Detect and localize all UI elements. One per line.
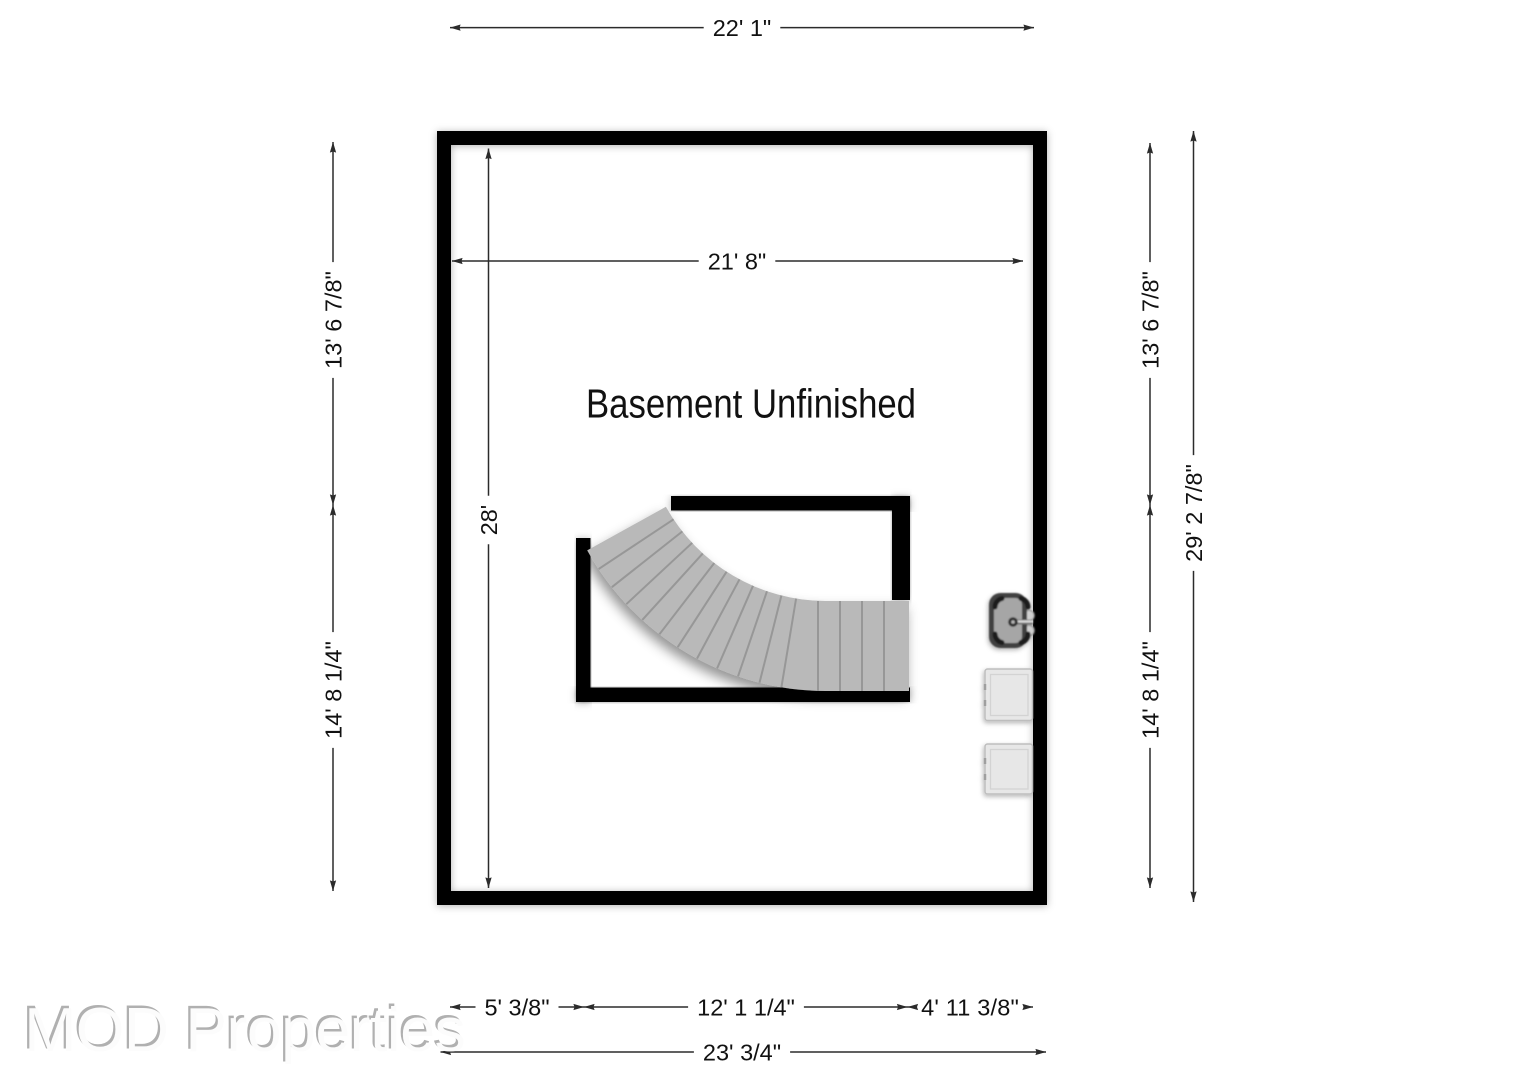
- svg-text:5' 3/8": 5' 3/8": [484, 994, 549, 1020]
- svg-text:12' 1 1/4": 12' 1 1/4": [697, 994, 795, 1020]
- svg-text:13' 6 7/8": 13' 6 7/8": [320, 271, 346, 369]
- svg-text:29' 2 7/8": 29' 2 7/8": [1181, 464, 1207, 562]
- svg-text:4' 11 3/8": 4' 11 3/8": [921, 994, 1019, 1020]
- svg-text:22' 1": 22' 1": [713, 15, 772, 41]
- svg-text:MOD Properties: MOD Properties: [24, 995, 465, 1065]
- svg-text:23' 3/4": 23' 3/4": [703, 1039, 781, 1065]
- svg-text:21' 8": 21' 8": [708, 248, 767, 274]
- svg-text:28': 28': [476, 505, 502, 536]
- svg-text:14' 8 1/4": 14' 8 1/4": [1137, 641, 1163, 739]
- svg-text:Basement Unfinished: Basement Unfinished: [586, 381, 916, 427]
- svg-text:13' 6 7/8": 13' 6 7/8": [1137, 271, 1163, 369]
- svg-text:14' 8 1/4": 14' 8 1/4": [320, 641, 346, 739]
